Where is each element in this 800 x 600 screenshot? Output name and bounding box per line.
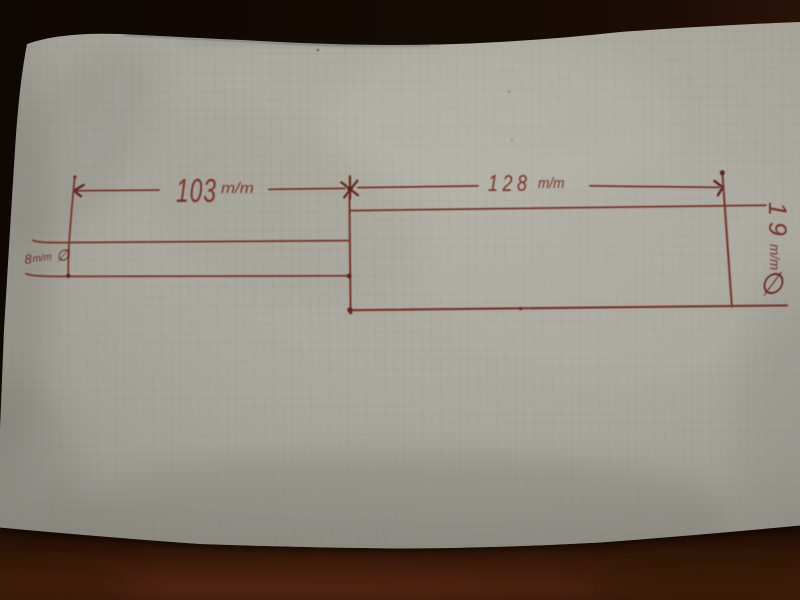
- svg-text:103: 103: [176, 173, 217, 210]
- svg-text:19: 19: [763, 202, 791, 242]
- svg-text:128: 128: [488, 171, 532, 197]
- svg-text:m/m: m/m: [32, 252, 53, 265]
- svg-text:m/m: m/m: [221, 181, 254, 197]
- svg-text:m/m: m/m: [538, 175, 565, 191]
